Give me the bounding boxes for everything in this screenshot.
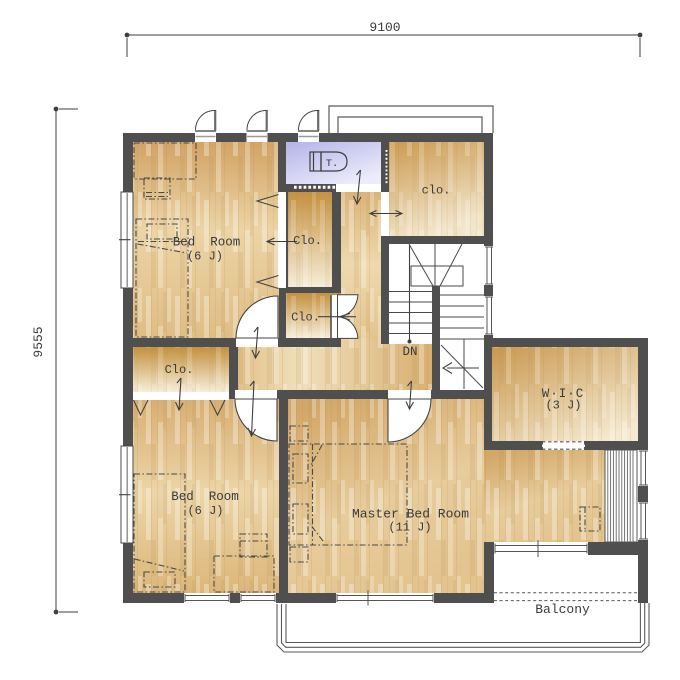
svg-text:Master Bed Room: Master Bed Room [352,507,469,522]
svg-text:9100: 9100 [369,20,400,35]
svg-text:Bed Room: Bed Room [171,490,239,504]
svg-text:(6 J): (6 J) [187,504,223,518]
svg-text:Bed Room: Bed Room [173,236,241,250]
svg-text:T.: T. [326,158,339,170]
svg-text:(11 J): (11 J) [388,521,431,535]
svg-text:clo.: clo. [422,184,451,198]
svg-text:Clo.: Clo. [291,311,320,325]
svg-text:DN: DN [402,345,417,359]
svg-text:Clo.: Clo. [165,363,194,377]
svg-text:Clo.: Clo. [293,234,322,248]
svg-text:Balcony: Balcony [535,602,590,617]
svg-text:9555: 9555 [31,326,46,357]
svg-text:(3 J): (3 J) [545,399,581,413]
svg-text:(6 J): (6 J) [187,250,223,264]
